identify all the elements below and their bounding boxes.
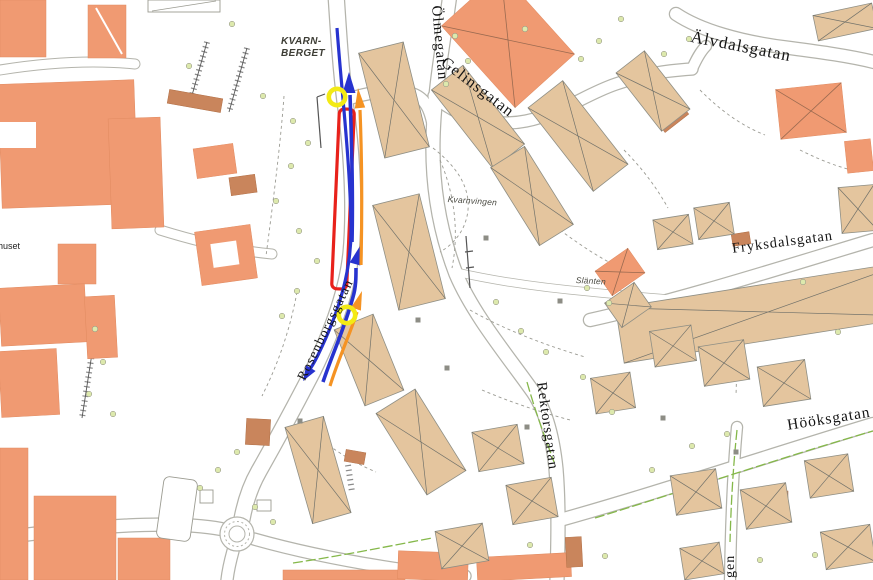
map-canvas (0, 0, 873, 580)
map-view: KVARN- BERGET Ölmegatan Gelinsgatan Älvd… (0, 0, 873, 580)
roundabout (220, 517, 254, 551)
route-arrow-orange-upper (360, 110, 362, 265)
